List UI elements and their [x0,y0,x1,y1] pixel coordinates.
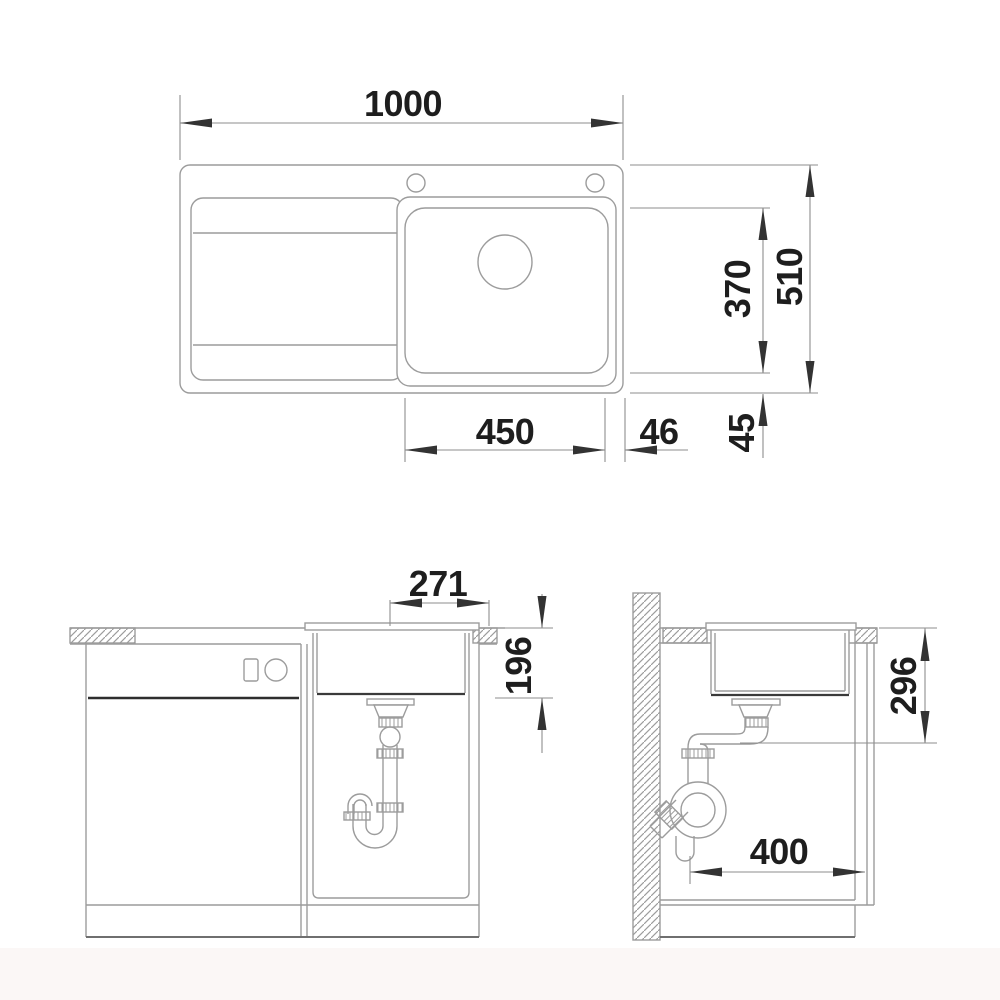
dim-bowl-to-right-edge: 46 [625,398,688,462]
side-section-view [633,593,877,940]
dim-label-1000: 1000 [364,83,442,124]
arrow-left-icon [405,446,437,455]
dim-label-370: 370 [717,260,758,319]
arrow-down-icon [806,361,815,393]
dim-label-45: 45 [721,413,762,453]
bowl [397,197,616,386]
dim-drain-offset: 271 [390,563,489,626]
dim-overall-width: 1000 [180,83,623,160]
arrow-right-icon [573,446,605,455]
sink-dimension-drawing: 1000 510 370 45 450 [0,0,1000,1000]
dim-label-271: 271 [409,563,468,604]
dim-bowl-to-front-edge: 45 [721,394,768,458]
dim-bowl-width: 450 [405,398,605,462]
cabinet-front [86,630,479,937]
dim-label-450: 450 [476,411,535,452]
arrow-left-icon [690,868,722,877]
cabinet-interior [313,633,469,898]
arrow-up-icon [921,629,930,661]
drain-trap-front-icon [344,699,414,848]
dim-label-196: 196 [498,637,539,696]
arrow-down-icon [759,341,768,373]
dim-label-46: 46 [639,411,678,452]
dim-label-400: 400 [750,831,809,872]
front-section-view [70,623,505,937]
dim-bowl-height: 196 [495,594,553,753]
sink-rim-front [305,623,479,630]
arrow-up-icon [806,165,815,197]
sink-rim-side [706,623,856,630]
knob-icon [265,659,287,681]
dim-outlet-height: 296 [740,628,937,743]
countertop-cut-left [663,628,707,643]
countertop-cut-right [855,628,877,643]
technical-drawing-page: 1000 510 370 45 450 [0,0,1000,1000]
arrow-up-icon [538,698,547,730]
arrow-right-icon [833,868,865,877]
dim-label-296: 296 [883,657,924,716]
drawer-handle-icon [244,659,258,681]
bowl-section-front [317,633,465,694]
arrow-right-icon [591,119,623,128]
wall-section [633,593,660,940]
countertop-cut-left [70,628,135,643]
arrow-left-icon [180,119,212,128]
dim-label-510: 510 [769,248,810,307]
top-view [180,165,623,393]
bowl-section-side [711,630,849,695]
dim-bowl-depth: 370 [630,208,770,373]
arrow-up-icon [759,208,768,240]
arrow-down-icon [538,596,547,628]
dim-cabinet-depth: 400 [690,831,865,884]
photo-bottom-band [0,948,1000,1000]
